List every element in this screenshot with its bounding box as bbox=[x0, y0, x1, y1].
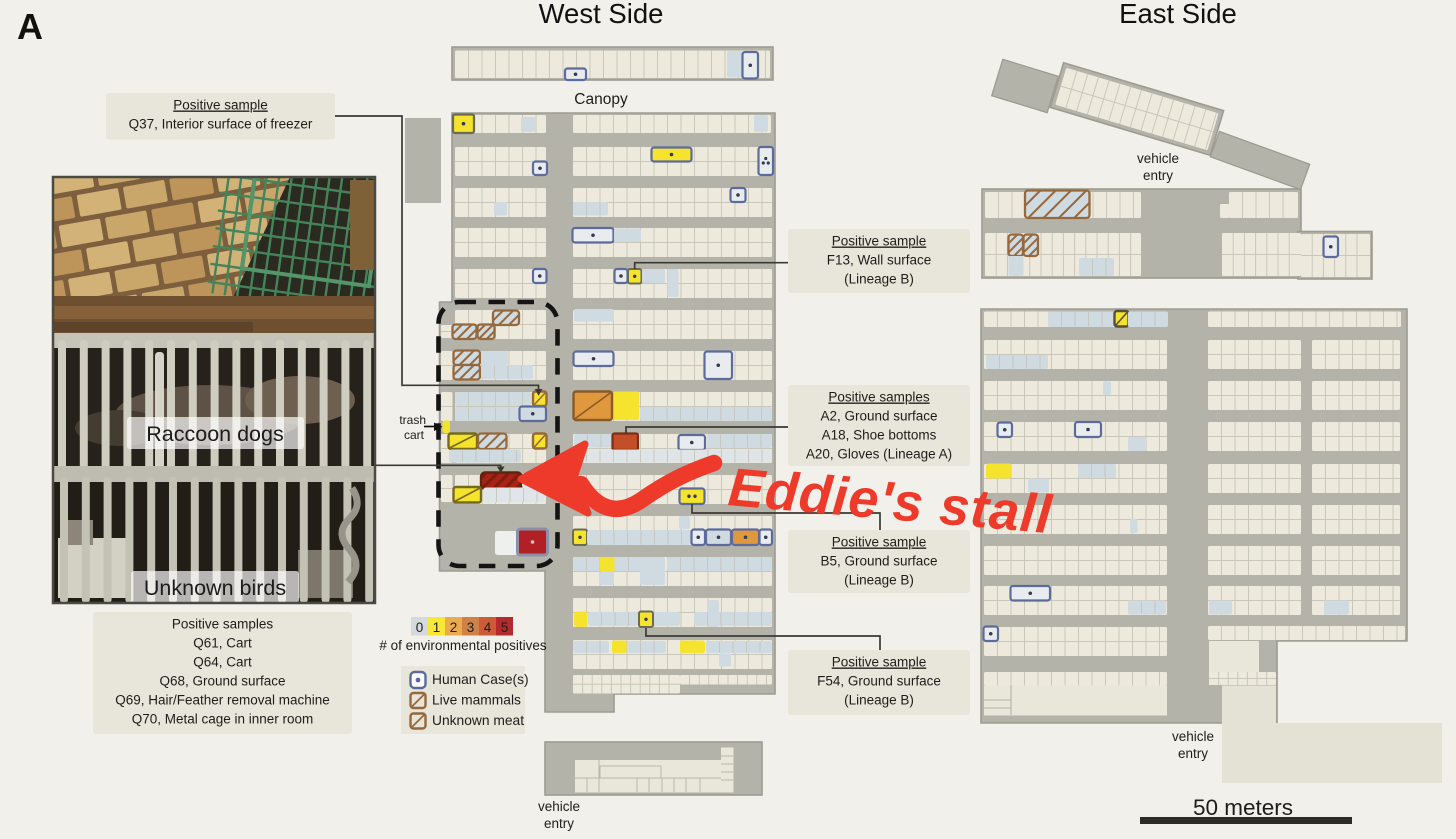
svg-text:A20, Gloves (Lineage A): A20, Gloves (Lineage A) bbox=[806, 447, 952, 462]
svg-text:Canopy: Canopy bbox=[574, 91, 628, 108]
svg-text:entry: entry bbox=[1178, 746, 1208, 761]
svg-text:(Lineage B): (Lineage B) bbox=[844, 272, 914, 287]
svg-text:Positive sample: Positive sample bbox=[832, 655, 927, 670]
svg-text:Live mammals: Live mammals bbox=[432, 693, 521, 708]
svg-text:A18, Shoe bottoms: A18, Shoe bottoms bbox=[822, 428, 937, 443]
svg-text:B5, Ground surface: B5, Ground surface bbox=[820, 554, 937, 569]
svg-text:East Side: East Side bbox=[1119, 0, 1237, 29]
svg-text:F13, Wall surface: F13, Wall surface bbox=[827, 253, 932, 268]
svg-text:Q68, Ground surface: Q68, Ground surface bbox=[159, 674, 285, 689]
svg-text:vehicle: vehicle bbox=[1137, 151, 1179, 166]
svg-text:2: 2 bbox=[450, 620, 458, 635]
svg-text:Human Case(s): Human Case(s) bbox=[432, 672, 529, 687]
svg-text:Raccoon dogs: Raccoon dogs bbox=[146, 422, 283, 446]
svg-text:Positive samples: Positive samples bbox=[828, 390, 930, 405]
svg-text:Q64, Cart: Q64, Cart bbox=[193, 655, 252, 670]
svg-text:Positive sample: Positive sample bbox=[832, 535, 927, 550]
svg-text:West Side: West Side bbox=[539, 0, 664, 29]
svg-text:A: A bbox=[17, 6, 43, 47]
svg-text:Positive samples: Positive samples bbox=[172, 617, 274, 632]
svg-text:entry: entry bbox=[1143, 168, 1173, 183]
svg-text:Q69, Hair/Feather removal mach: Q69, Hair/Feather removal machine bbox=[115, 693, 330, 708]
svg-text:50 meters: 50 meters bbox=[1193, 795, 1293, 820]
svg-text:A2, Ground surface: A2, Ground surface bbox=[820, 409, 937, 424]
svg-text:Q61, Cart: Q61, Cart bbox=[193, 636, 252, 651]
svg-text:cart: cart bbox=[404, 428, 425, 442]
svg-text:Q37, Interior surface of freez: Q37, Interior surface of freezer bbox=[129, 117, 313, 132]
svg-text:(Lineage B): (Lineage B) bbox=[844, 693, 914, 708]
svg-text:5: 5 bbox=[501, 620, 509, 635]
svg-text:0: 0 bbox=[416, 620, 424, 635]
svg-text:Positive sample: Positive sample bbox=[832, 234, 927, 249]
svg-text:Positive sample: Positive sample bbox=[173, 98, 268, 113]
svg-text:trash: trash bbox=[399, 413, 426, 427]
svg-text:4: 4 bbox=[484, 620, 492, 635]
svg-text:Q70, Metal cage in inner room: Q70, Metal cage in inner room bbox=[132, 712, 314, 727]
svg-text:F54, Ground surface: F54, Ground surface bbox=[817, 674, 941, 689]
svg-text:vehicle: vehicle bbox=[1172, 729, 1214, 744]
svg-text:1: 1 bbox=[433, 620, 441, 635]
svg-text:# of environmental positives: # of environmental positives bbox=[379, 638, 547, 653]
svg-text:(Lineage B): (Lineage B) bbox=[844, 573, 914, 588]
svg-text:Unknown birds: Unknown birds bbox=[144, 576, 286, 600]
svg-text:3: 3 bbox=[467, 620, 475, 635]
svg-text:Unknown meat: Unknown meat bbox=[432, 713, 524, 728]
svg-text:entry: entry bbox=[544, 816, 574, 831]
svg-text:vehicle: vehicle bbox=[538, 799, 580, 814]
